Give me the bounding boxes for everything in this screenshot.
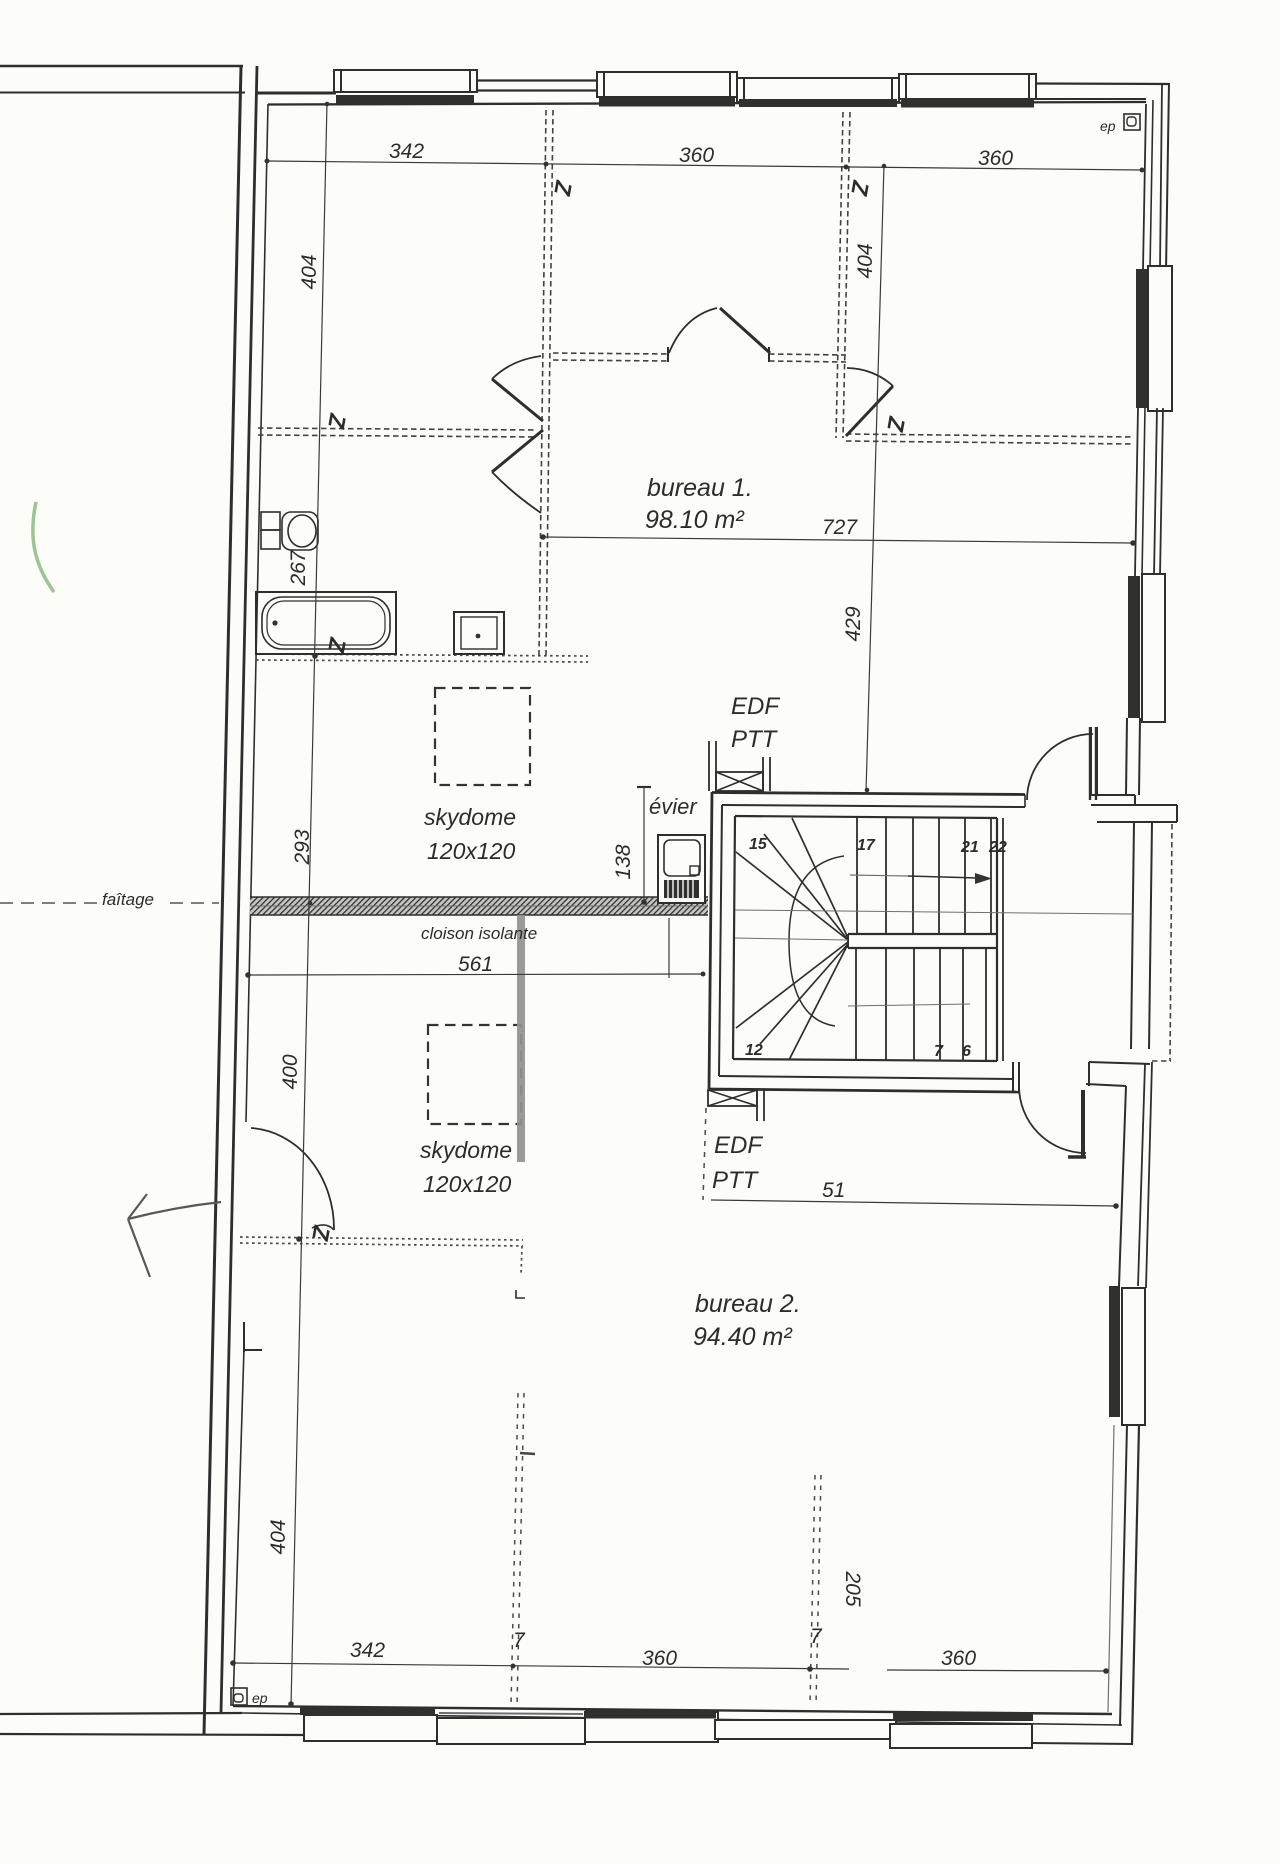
- svg-text:205: 205: [841, 1570, 864, 1606]
- svg-text:EDF: EDF: [731, 693, 780, 720]
- svg-text:360: 360: [978, 147, 1013, 170]
- svg-text:cloison isolante: cloison isolante: [421, 924, 537, 943]
- svg-text:21: 21: [960, 839, 979, 856]
- svg-text:skydome: skydome: [424, 804, 516, 830]
- svg-text:PTT: PTT: [712, 1167, 760, 1194]
- svg-text:404: 404: [298, 254, 321, 289]
- svg-text:EDF: EDF: [714, 1132, 763, 1159]
- svg-text:98.10 m²: 98.10 m²: [645, 506, 745, 534]
- svg-text:267: 267: [287, 549, 310, 586]
- svg-text:120x120: 120x120: [423, 1171, 511, 1197]
- svg-text:94.40 m²: 94.40 m²: [693, 1323, 793, 1351]
- svg-text:22: 22: [988, 839, 1007, 856]
- svg-text:bureau 1.: bureau 1.: [647, 474, 753, 502]
- svg-text:561: 561: [458, 953, 493, 976]
- svg-text:404: 404: [854, 243, 877, 278]
- svg-text:360: 360: [941, 1647, 976, 1670]
- svg-text:342: 342: [350, 1639, 385, 1662]
- svg-text:400: 400: [279, 1054, 302, 1089]
- svg-text:138: 138: [612, 844, 635, 879]
- svg-text:15: 15: [749, 836, 768, 853]
- svg-text:51: 51: [822, 1179, 845, 1202]
- svg-text:7: 7: [934, 1043, 944, 1060]
- svg-text:7: 7: [513, 1629, 526, 1652]
- svg-text:429: 429: [842, 606, 865, 641]
- svg-text:404: 404: [267, 1519, 290, 1554]
- svg-text:faîtage: faîtage: [102, 890, 154, 909]
- svg-text:ep: ep: [252, 1690, 268, 1706]
- svg-text:12: 12: [745, 1042, 763, 1059]
- svg-text:PTT: PTT: [731, 726, 779, 753]
- svg-text:7: 7: [810, 1625, 823, 1648]
- svg-text:342: 342: [389, 140, 424, 163]
- svg-text:360: 360: [679, 144, 714, 167]
- svg-text:bureau 2.: bureau 2.: [695, 1290, 801, 1318]
- svg-text:360: 360: [642, 1647, 677, 1670]
- svg-text:ep: ep: [1100, 118, 1116, 134]
- svg-text:727: 727: [822, 516, 858, 539]
- svg-text:17: 17: [857, 837, 876, 854]
- svg-text:293: 293: [291, 829, 314, 865]
- svg-text:120x120: 120x120: [427, 838, 515, 864]
- svg-text:évier: évier: [649, 794, 698, 819]
- svg-text:6: 6: [962, 1043, 971, 1060]
- svg-text:skydome: skydome: [420, 1137, 512, 1163]
